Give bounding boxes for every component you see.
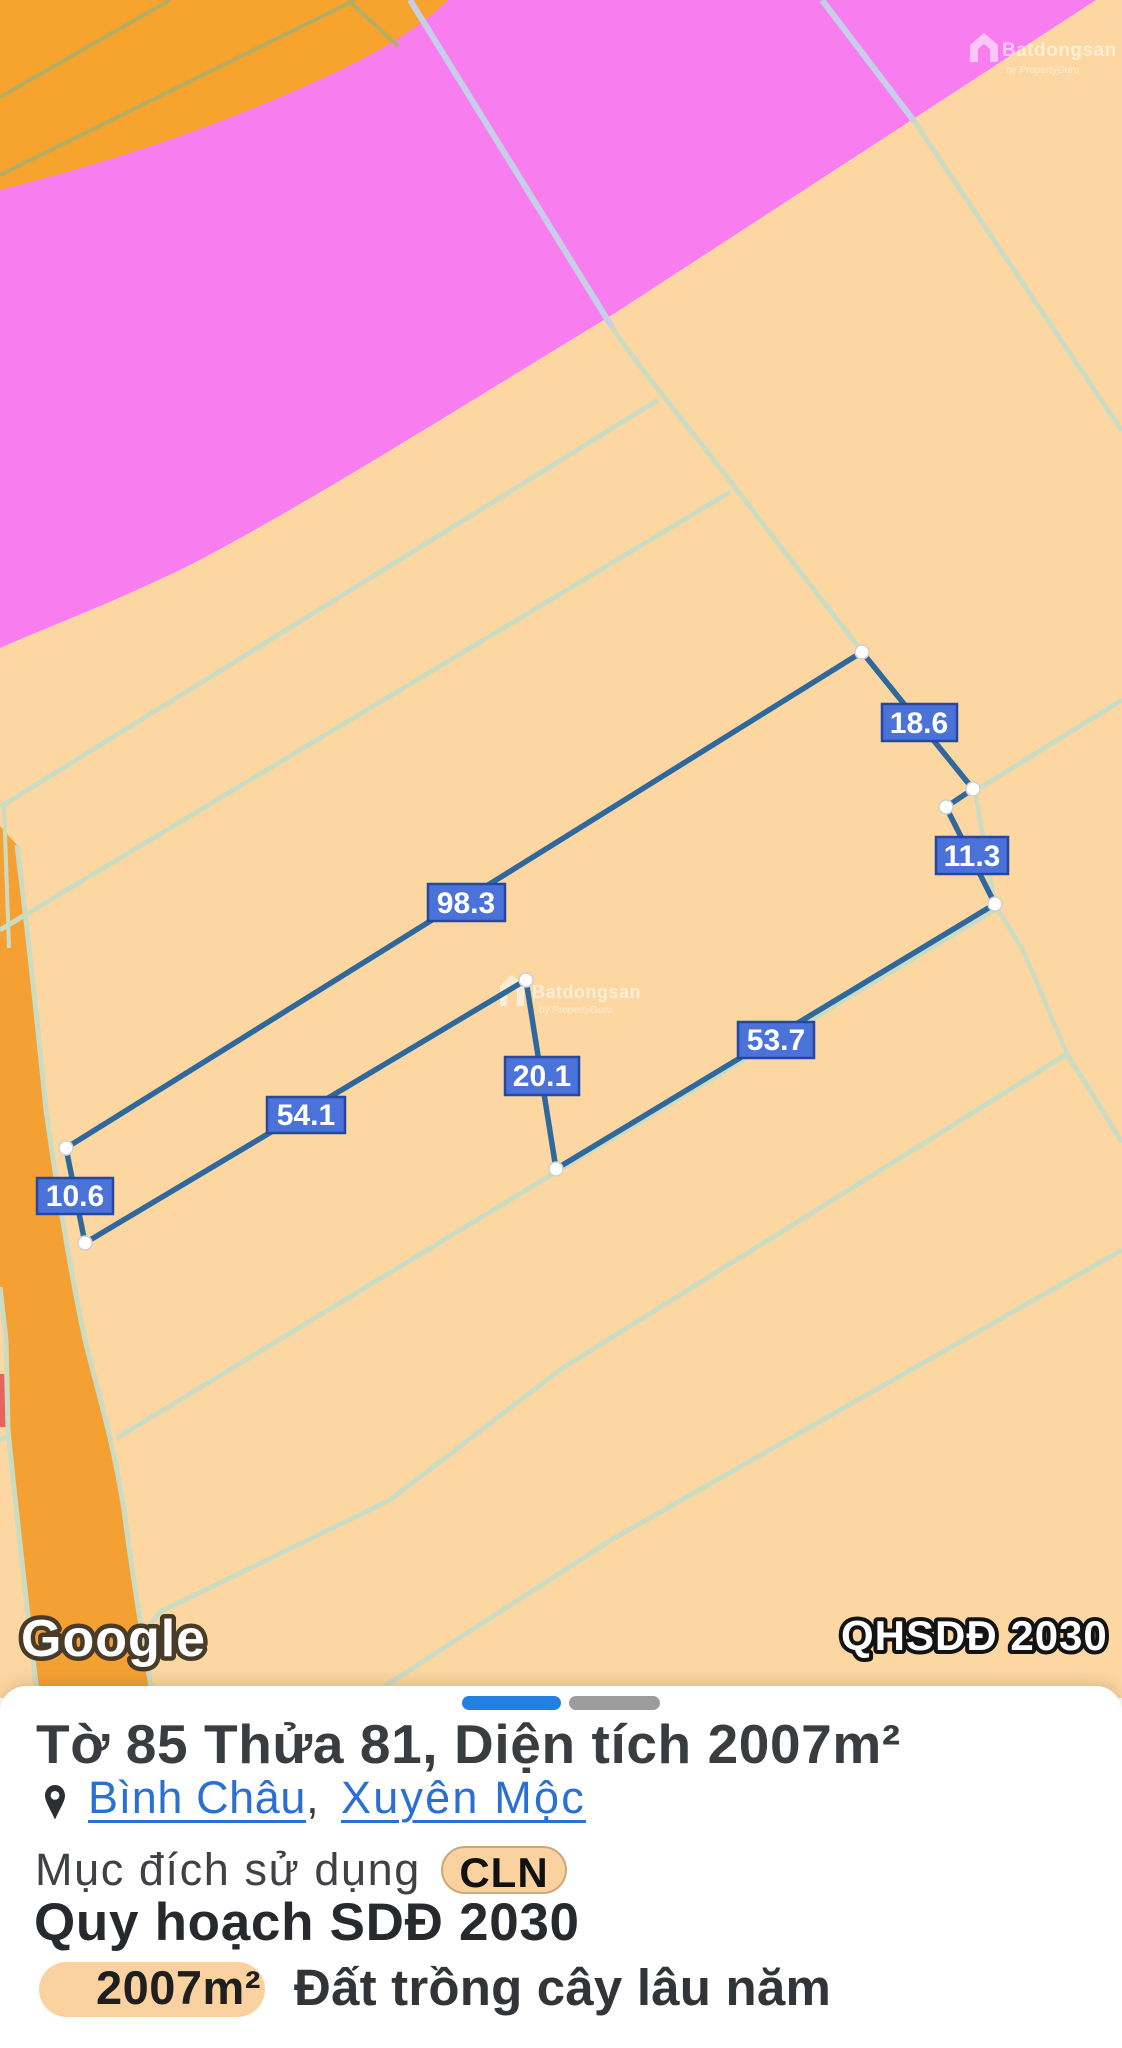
svg-text:18.6: 18.6: [890, 707, 948, 740]
svg-text:53.7: 53.7: [747, 1024, 805, 1057]
svg-text:54.1: 54.1: [277, 1099, 335, 1132]
svg-text:QHSDĐ 2030: QHSDĐ 2030: [841, 1612, 1108, 1659]
svg-text:by PropertyGuru: by PropertyGuru: [1006, 65, 1079, 76]
svg-text:98.3: 98.3: [437, 887, 495, 920]
svg-text:10.6: 10.6: [46, 1180, 104, 1213]
svg-text:by PropertyGuru: by PropertyGuru: [539, 1005, 612, 1016]
svg-text:Batdongsan: Batdongsan: [1002, 40, 1117, 61]
svg-text:Google: Google: [21, 1610, 206, 1668]
svg-text:Batdongsan: Batdongsan: [532, 982, 641, 1002]
svg-text:20.1: 20.1: [513, 1060, 571, 1093]
svg-text:11.3: 11.3: [944, 840, 1001, 873]
